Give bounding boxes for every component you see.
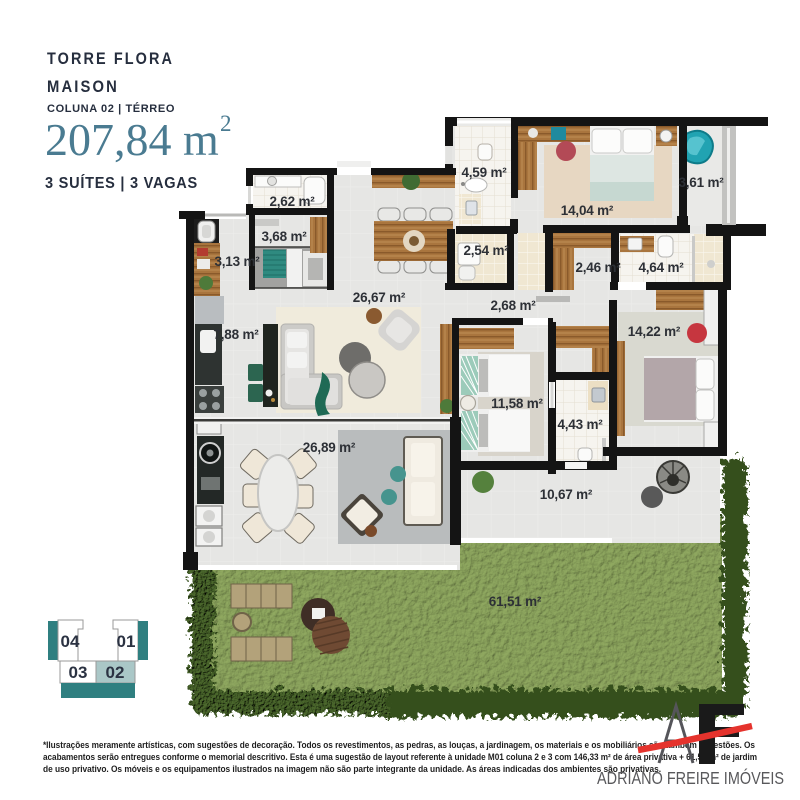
svg-text:04: 04 — [61, 632, 80, 651]
svg-text:03: 03 — [69, 663, 88, 682]
svg-text:de uso privativo. Os móveis e: de uso privativo. Os móveis e os equipam… — [43, 764, 661, 774]
svg-text:4,43 m²: 4,43 m² — [557, 417, 603, 432]
svg-text:11,58 m²: 11,58 m² — [491, 396, 543, 411]
svg-text:26,67 m²: 26,67 m² — [353, 290, 406, 305]
svg-text:acabamentos serão entregues co: acabamentos serão entregues conforme o m… — [43, 752, 757, 762]
svg-text:4,64 m²: 4,64 m² — [638, 260, 684, 275]
svg-text:7,88 m²: 7,88 m² — [213, 327, 259, 342]
svg-text:2,46 m²: 2,46 m² — [575, 260, 621, 275]
svg-text:207,84 m: 207,84 m — [45, 114, 219, 165]
svg-text:14,04 m²: 14,04 m² — [561, 203, 614, 218]
svg-text:ADRIANO FREIRE IMÓVEIS: ADRIANO FREIRE IMÓVEIS — [597, 767, 784, 788]
svg-text:TORRE FLORA: TORRE FLORA — [47, 50, 174, 68]
svg-text:2,68 m²: 2,68 m² — [490, 298, 536, 313]
svg-text:4,59 m²: 4,59 m² — [461, 165, 507, 180]
svg-text:02: 02 — [106, 663, 125, 682]
svg-text:3,68 m²: 3,68 m² — [261, 229, 307, 244]
svg-text:14,22 m²: 14,22 m² — [628, 324, 681, 339]
svg-text:2: 2 — [220, 111, 232, 136]
svg-text:61,51 m²: 61,51 m² — [489, 594, 542, 609]
svg-text:26,89 m²: 26,89 m² — [303, 440, 356, 455]
svg-text:10,67 m²: 10,67 m² — [540, 487, 593, 502]
svg-text:01: 01 — [117, 632, 136, 651]
svg-text:MAISON: MAISON — [47, 78, 119, 96]
svg-text:2,62 m²: 2,62 m² — [269, 194, 315, 209]
svg-text:2,54 m²: 2,54 m² — [463, 243, 509, 258]
svg-text:3,13 m²: 3,13 m² — [214, 254, 260, 269]
svg-text:3 SUÍTES | 3 VAGAS: 3 SUÍTES | 3 VAGAS — [45, 175, 198, 192]
svg-text:3,61 m²: 3,61 m² — [678, 175, 724, 190]
